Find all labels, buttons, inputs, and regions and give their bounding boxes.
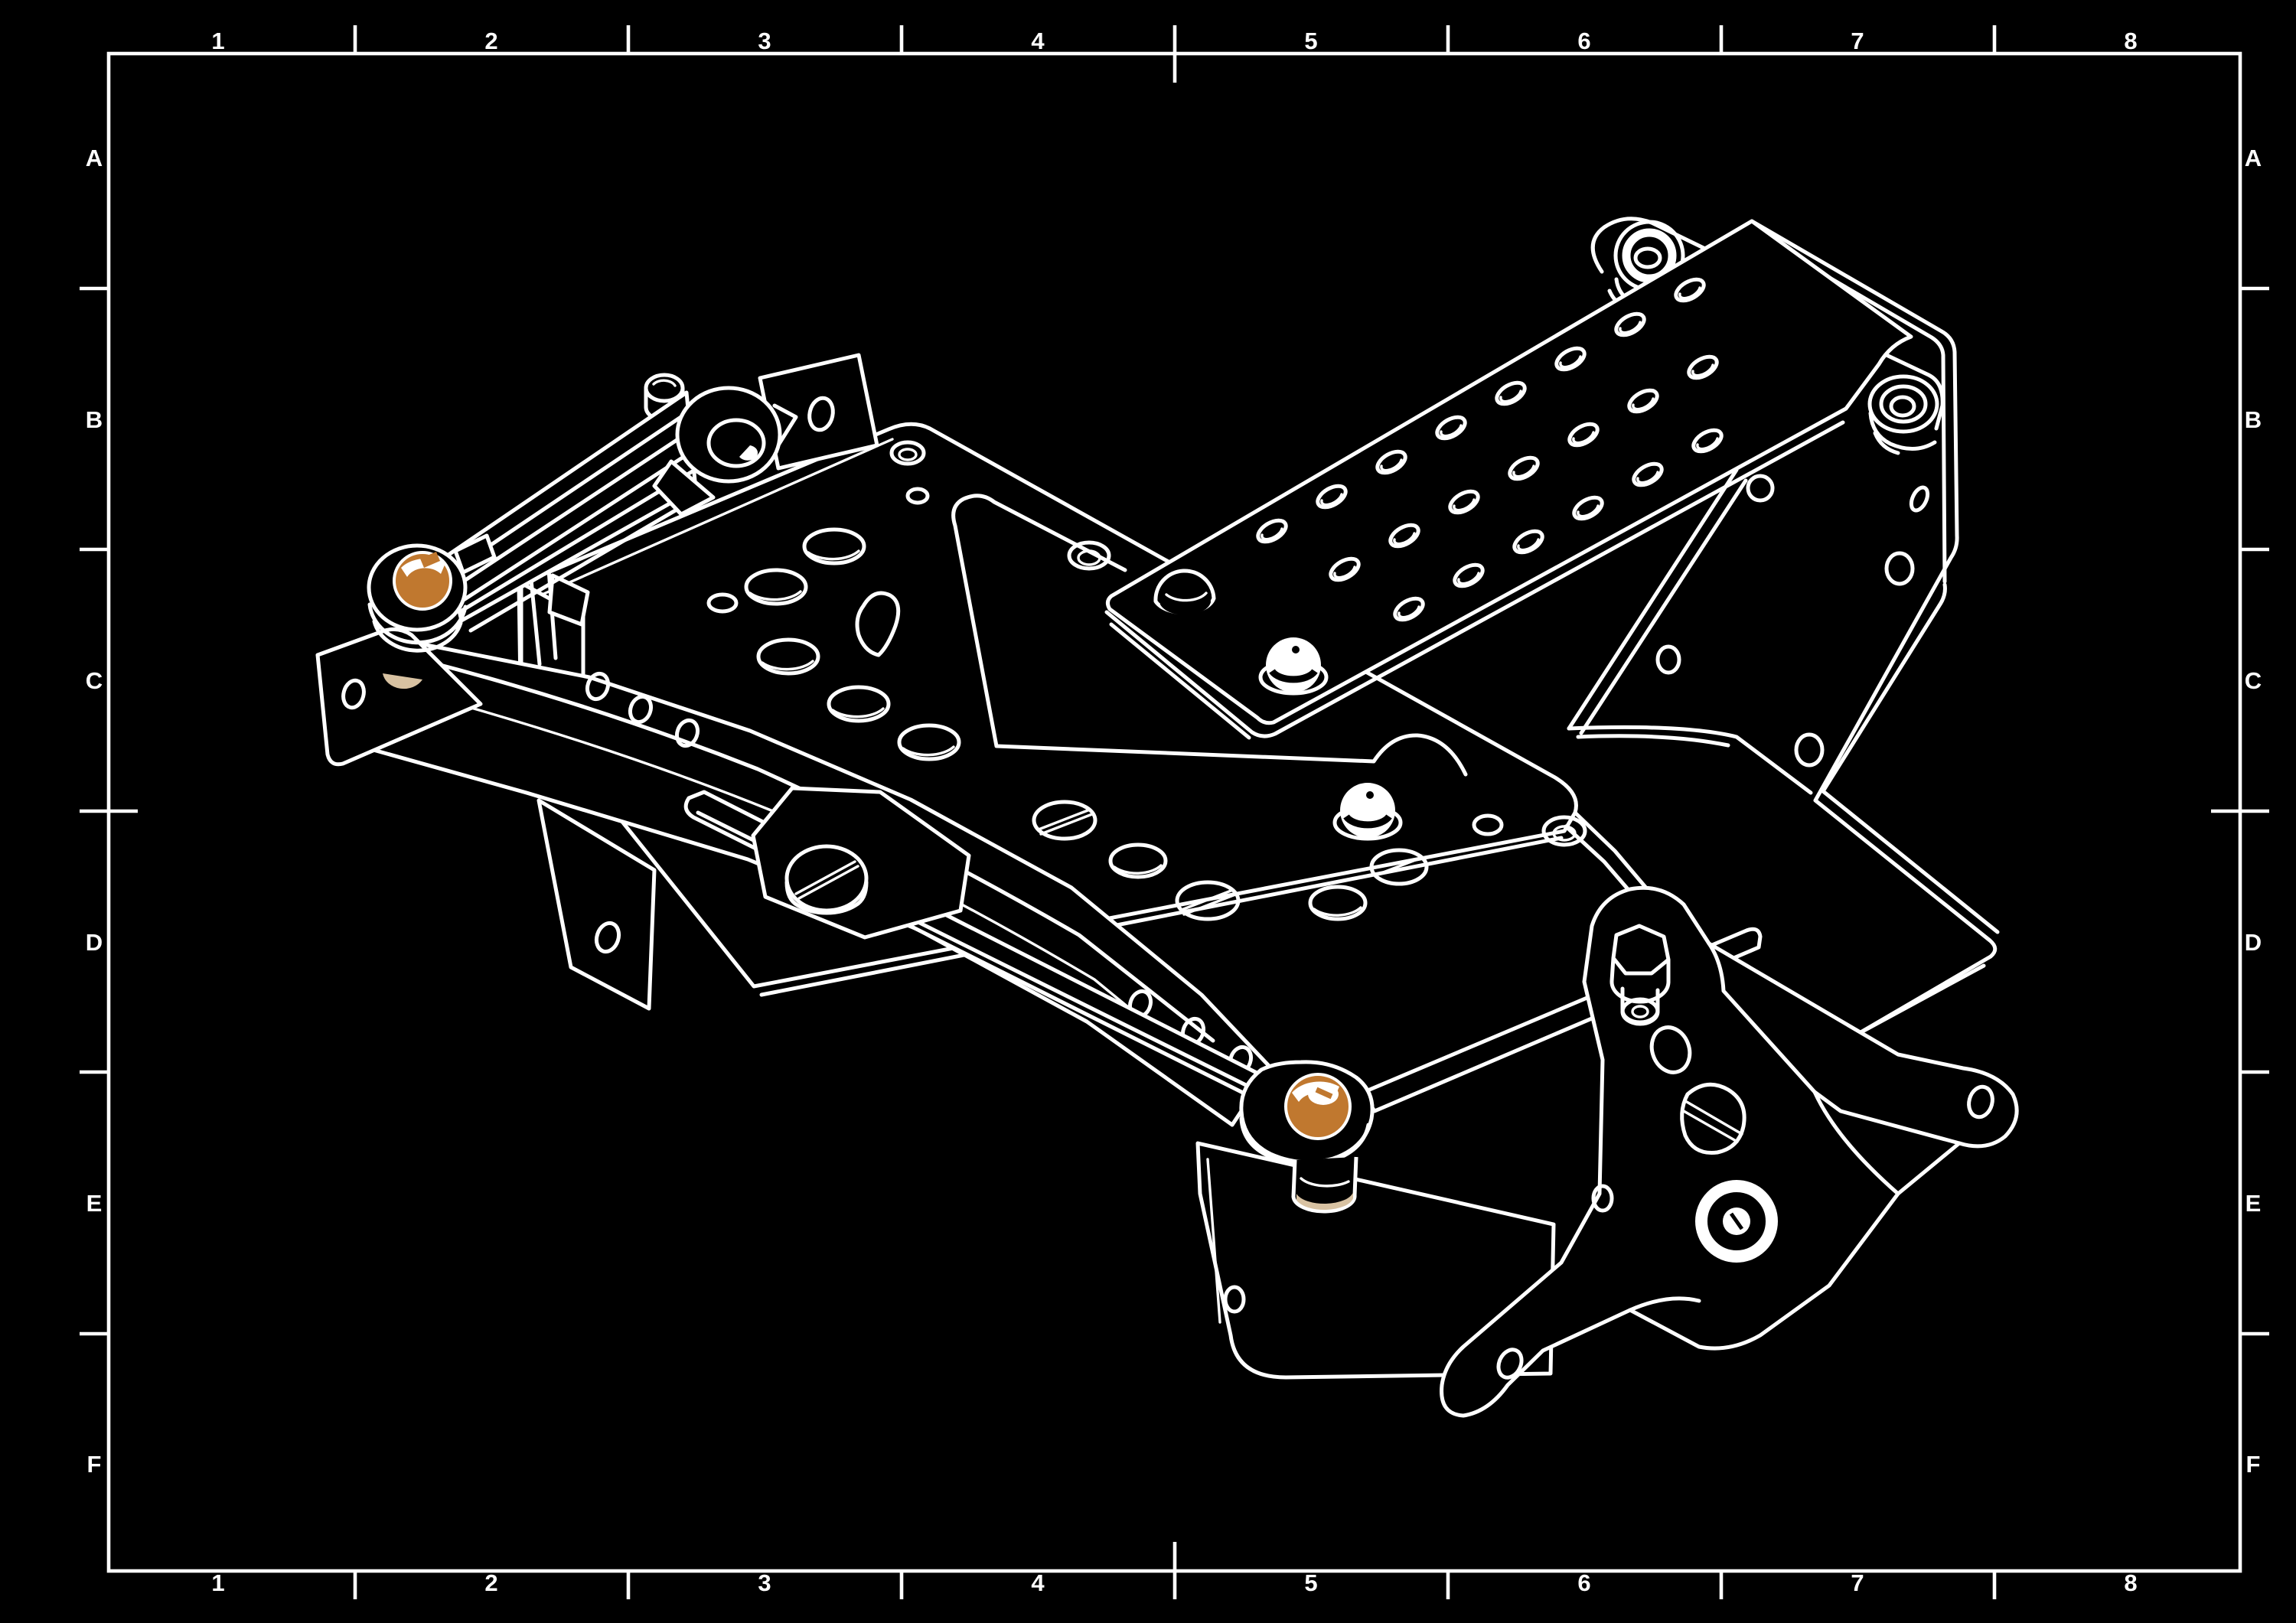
svg-text:F: F <box>2246 1451 2261 1478</box>
svg-text:7: 7 <box>1851 1569 1864 1596</box>
svg-text:C: C <box>2245 667 2262 694</box>
svg-text:2: 2 <box>484 28 497 54</box>
svg-text:8: 8 <box>2124 1569 2137 1596</box>
svg-text:B: B <box>86 406 103 433</box>
svg-text:2: 2 <box>484 1569 497 1596</box>
svg-text:1: 1 <box>211 28 224 54</box>
svg-text:F: F <box>87 1451 102 1478</box>
svg-text:7: 7 <box>1851 28 1864 54</box>
svg-text:D: D <box>86 929 103 956</box>
svg-text:B: B <box>2245 406 2262 433</box>
svg-text:D: D <box>2245 929 2262 956</box>
svg-text:E: E <box>2245 1190 2262 1217</box>
svg-text:5: 5 <box>1304 28 1317 54</box>
svg-text:6: 6 <box>1577 1569 1590 1596</box>
svg-text:3: 3 <box>758 28 771 54</box>
svg-text:3: 3 <box>758 1569 771 1596</box>
svg-text:C: C <box>86 667 103 694</box>
svg-text:8: 8 <box>2124 28 2137 54</box>
svg-text:4: 4 <box>1031 1569 1045 1596</box>
svg-text:4: 4 <box>1031 28 1045 54</box>
svg-text:1: 1 <box>211 1569 224 1596</box>
svg-text:5: 5 <box>1304 1569 1317 1596</box>
svg-text:A: A <box>2245 145 2262 171</box>
svg-text:A: A <box>86 145 103 171</box>
svg-text:6: 6 <box>1577 28 1590 54</box>
svg-text:E: E <box>86 1190 103 1217</box>
